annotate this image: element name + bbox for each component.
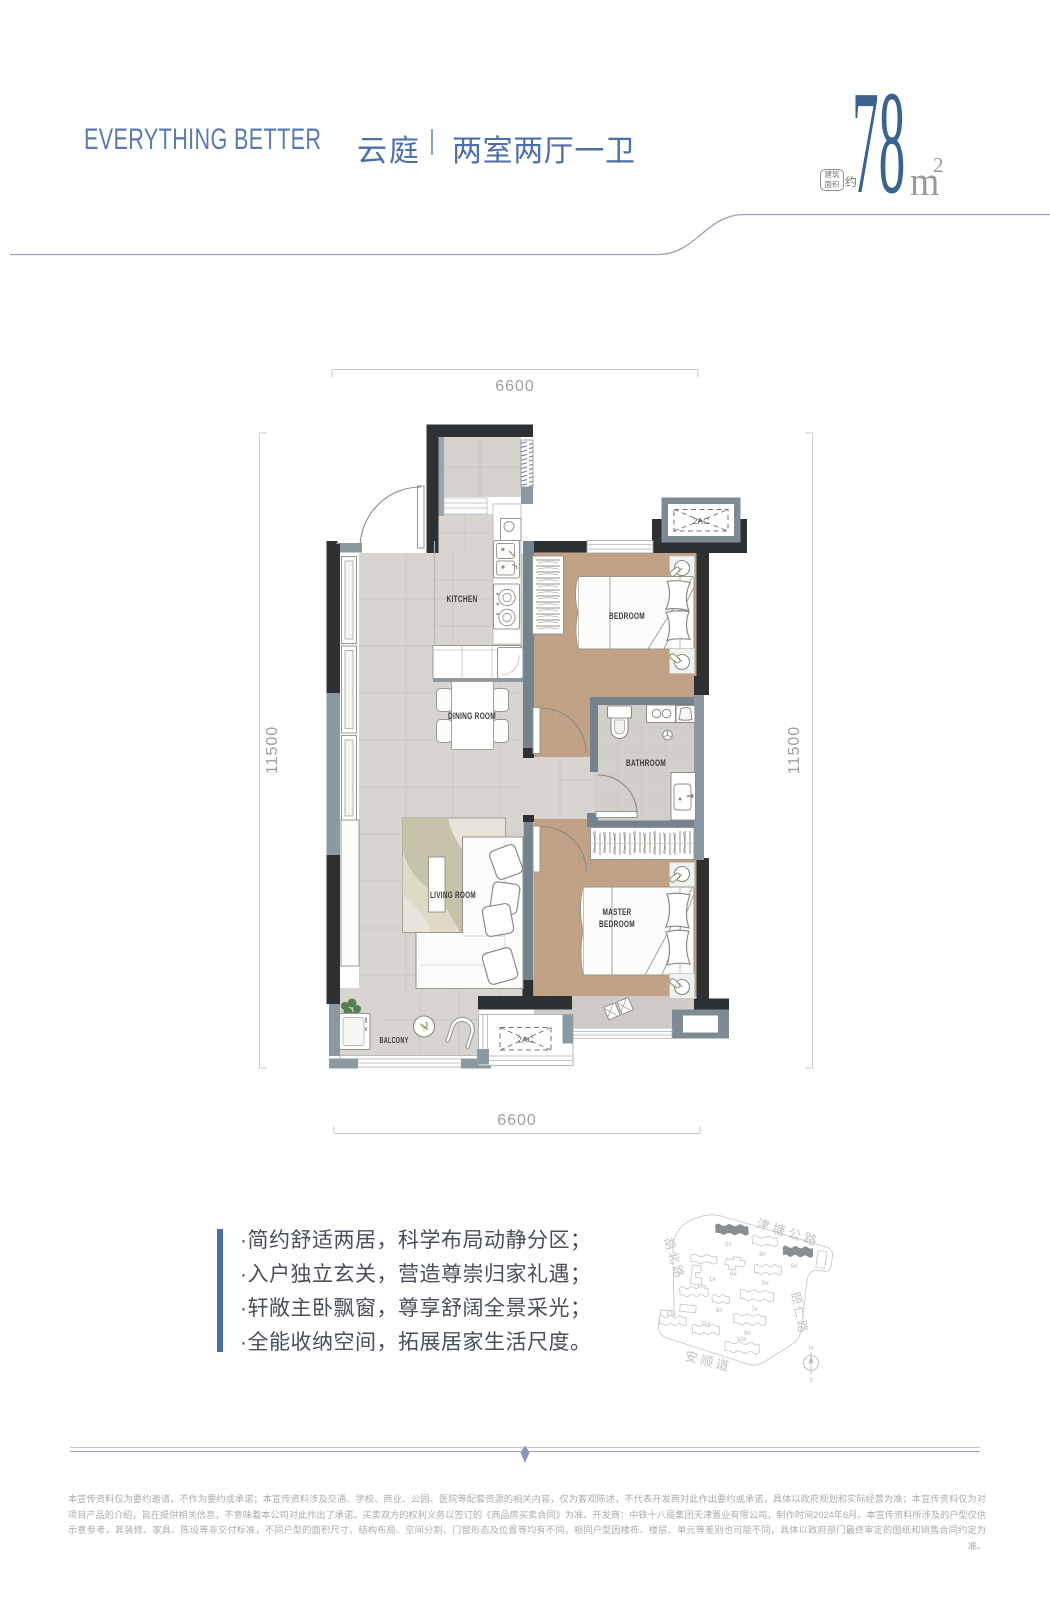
svg-text:1#: 1# <box>709 1277 716 1283</box>
svg-text:11500: 11500 <box>786 726 803 774</box>
svg-text:安顺道: 安顺道 <box>683 1348 733 1374</box>
svg-text:5#: 5# <box>762 1281 769 1287</box>
svg-text:KITCHEN: KITCHEN <box>447 594 478 605</box>
svg-text:胡北路: 胡北路 <box>661 1235 688 1281</box>
svg-text:颐仁路: 颐仁路 <box>788 1291 812 1337</box>
svg-text:DINING ROOM: DINING ROOM <box>448 711 496 722</box>
svg-text:S: S <box>809 1378 813 1384</box>
svg-text:2AC: 2AC <box>693 516 710 526</box>
svg-text:BEDROOM: BEDROOM <box>609 611 645 622</box>
svg-text:11500: 11500 <box>264 726 281 774</box>
svg-text:2#: 2# <box>725 1242 732 1248</box>
svg-text:6#: 6# <box>791 1264 798 1270</box>
svg-text:BATHROOM: BATHROOM <box>626 758 666 769</box>
svg-text:3#: 3# <box>759 1252 766 1258</box>
svg-text:LIVING ROOM: LIVING ROOM <box>430 890 476 901</box>
svg-text:6600: 6600 <box>495 378 535 395</box>
svg-text:8#: 8# <box>716 1308 723 1314</box>
svg-text:6600: 6600 <box>497 1112 537 1129</box>
svg-text:MASTER: MASTER <box>603 907 632 918</box>
svg-text:7#: 7# <box>751 1307 758 1313</box>
svg-text:6#: 6# <box>730 1272 737 1278</box>
svg-text:BEDROOM: BEDROOM <box>599 919 635 930</box>
svg-text:BALCONY: BALCONY <box>380 1035 409 1045</box>
svg-text:2AC: 2AC <box>517 1035 534 1045</box>
svg-text:N: N <box>809 1346 813 1352</box>
